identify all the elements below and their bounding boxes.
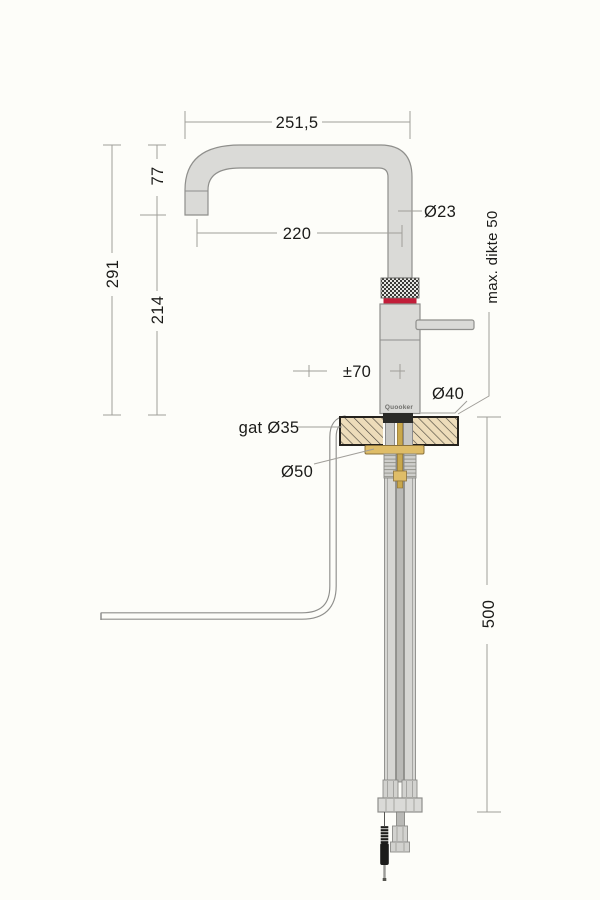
lower-fitting <box>393 826 408 842</box>
red-indicator-ring <box>384 298 417 304</box>
brass-rod <box>397 454 402 472</box>
jack-plug-body <box>380 843 389 865</box>
label-washer-diameter: Ø50 <box>281 463 313 481</box>
flexible-hose <box>101 419 346 620</box>
lower-nut <box>391 842 410 852</box>
countertop-section <box>340 413 458 447</box>
jack-plug-pin <box>383 865 385 878</box>
label-max-thickness: max. dikte 50 <box>484 210 501 303</box>
lever-handle <box>416 320 474 330</box>
label-clearance-below: 500 <box>480 600 498 628</box>
leader-washer-diameter <box>314 449 374 464</box>
label-spout-width: 251,5 <box>276 114 319 132</box>
label-handle-offset: ±70 <box>343 363 371 381</box>
tap-body <box>380 304 420 414</box>
technical-drawing-page: Quooker <box>0 0 600 900</box>
faucet-installation-diagram: Quooker <box>0 0 600 900</box>
knurled-ring <box>381 278 419 298</box>
label-total-height: 291 <box>104 260 122 288</box>
spout-arch <box>185 145 412 278</box>
quooker-logo: Quooker <box>385 404 413 411</box>
label-hole-diameter: gat Ø35 <box>239 419 300 437</box>
label-spout-drop: 77 <box>149 167 167 186</box>
mounting-bracket <box>378 798 422 812</box>
jack-plug-tip <box>383 878 387 881</box>
label-body-height: 214 <box>149 296 167 324</box>
threaded-rod-lower <box>397 812 405 826</box>
faucet: Quooker <box>185 145 474 414</box>
center-tube <box>397 446 404 782</box>
tube-nut-right <box>402 780 417 798</box>
fixing-set <box>365 446 424 882</box>
tube-nut-left <box>383 780 398 798</box>
jack-plug-grip <box>381 826 389 843</box>
label-spout-diameter: Ø23 <box>424 203 456 221</box>
label-base-diameter: Ø40 <box>432 385 464 403</box>
brass-tip <box>397 481 402 488</box>
supply-tube-left <box>385 446 396 782</box>
supply-tube-right <box>405 446 416 782</box>
brass-collar <box>394 471 407 481</box>
label-spout-reach: 220 <box>283 225 311 243</box>
base-gasket <box>383 413 413 423</box>
brass-flange-washer <box>365 446 424 455</box>
